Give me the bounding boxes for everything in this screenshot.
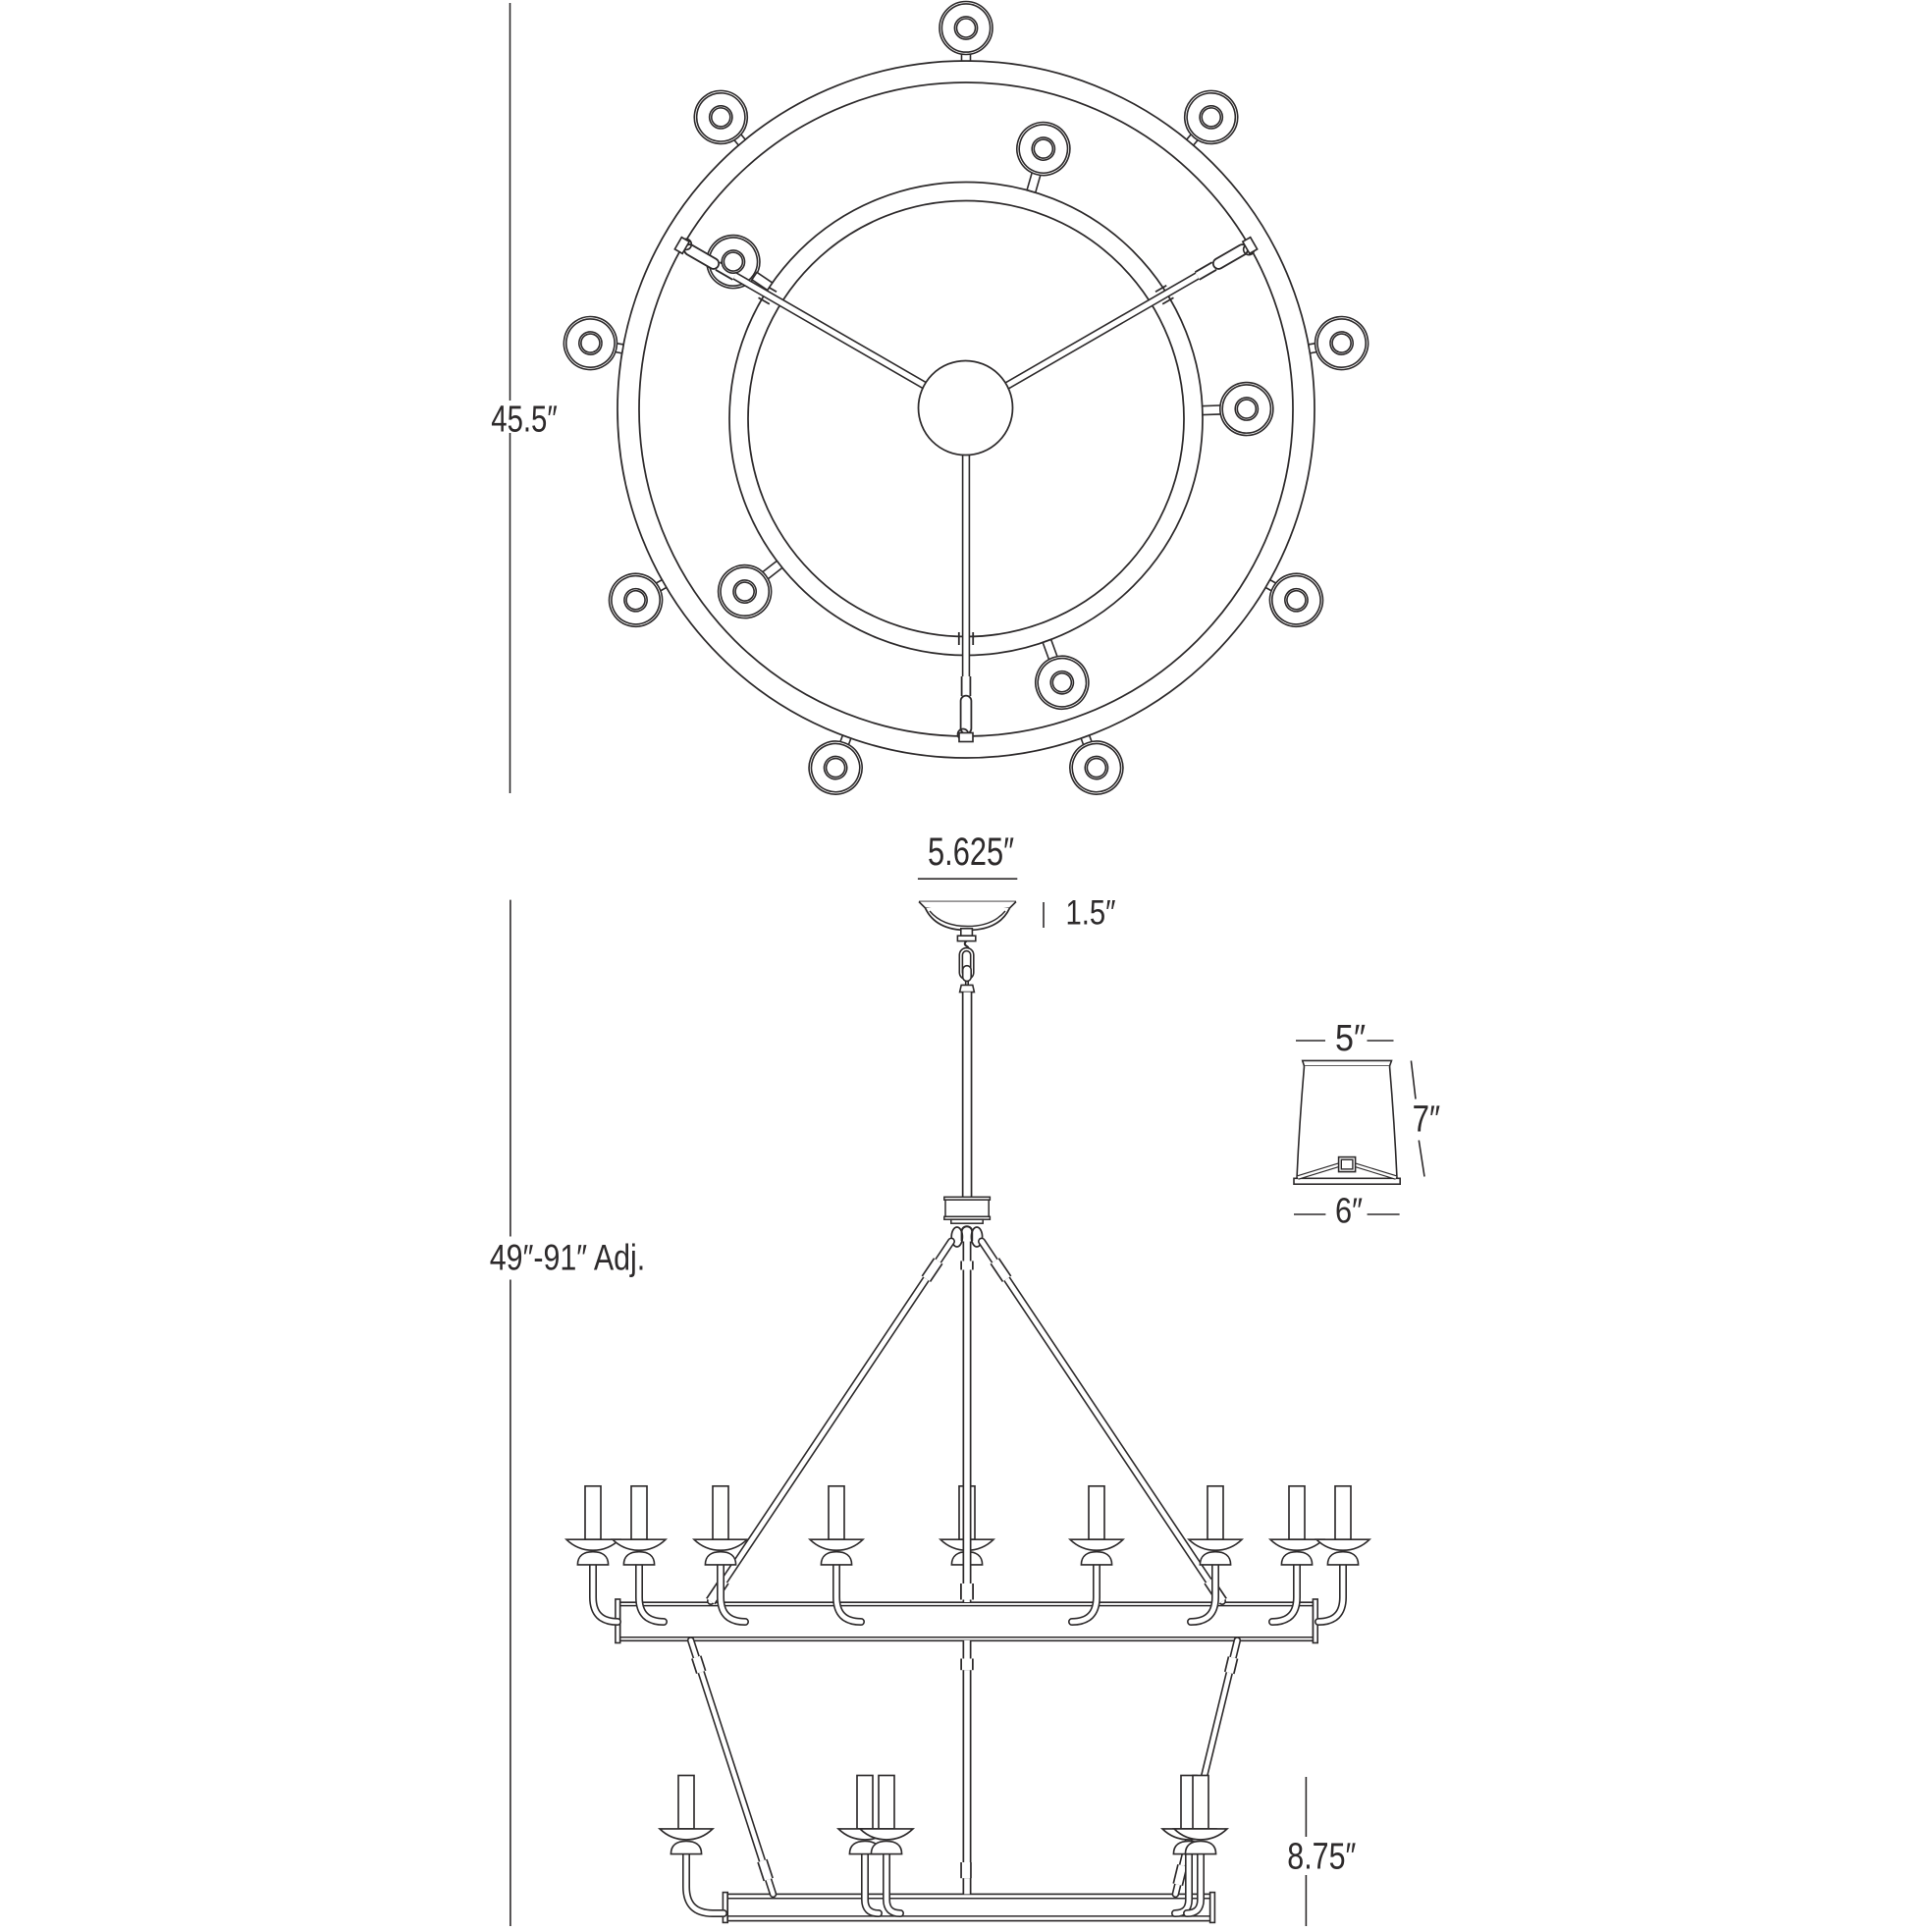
svg-text:8.75″: 8.75″ bbox=[1287, 1837, 1356, 1878]
svg-text:7″: 7″ bbox=[1413, 1100, 1441, 1141]
svg-text:45.5″: 45.5″ bbox=[491, 400, 558, 441]
svg-text:5″: 5″ bbox=[1335, 1018, 1366, 1059]
svg-text:5.625″: 5.625″ bbox=[928, 831, 1014, 874]
svg-text:6″: 6″ bbox=[1335, 1191, 1363, 1231]
svg-text:49″-91″ Adj.: 49″-91″ Adj. bbox=[490, 1238, 646, 1278]
svg-text:1.5″: 1.5″ bbox=[1066, 894, 1116, 933]
